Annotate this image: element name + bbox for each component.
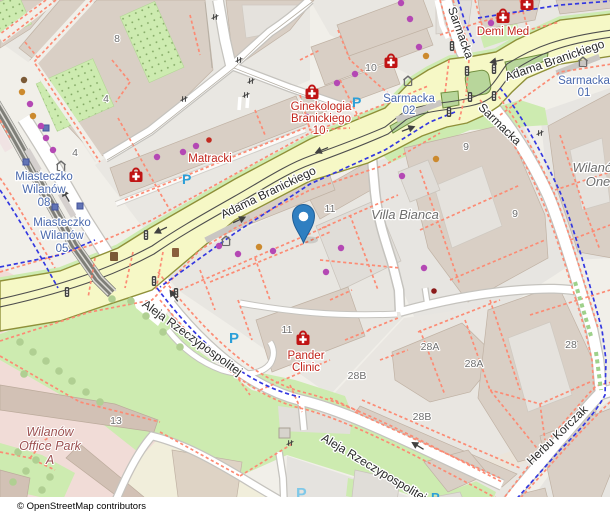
svg-text:Villa Bianca: Villa Bianca: [371, 207, 439, 222]
svg-text:02: 02: [403, 105, 416, 117]
svg-text:08: 08: [38, 197, 51, 209]
svg-text:01: 01: [578, 87, 591, 99]
svg-text:Branickiego: Branickiego: [291, 113, 351, 125]
svg-text:P: P: [182, 171, 191, 187]
svg-text:10: 10: [365, 62, 377, 74]
svg-text:28B: 28B: [348, 370, 367, 382]
svg-text:P: P: [229, 330, 239, 347]
svg-text:28B: 28B: [413, 411, 432, 423]
svg-text:Pander: Pander: [287, 350, 324, 362]
svg-text:© OpenStreetMap contributors: © OpenStreetMap contributors: [17, 501, 146, 512]
svg-text:05: 05: [56, 243, 69, 255]
svg-text:Demi Med: Demi Med: [477, 26, 529, 38]
svg-text:28: 28: [565, 339, 577, 351]
svg-text:Office Park: Office Park: [19, 439, 82, 453]
svg-text:Clinic: Clinic: [292, 362, 320, 374]
svg-text:8: 8: [114, 33, 120, 45]
svg-text:4: 4: [103, 93, 109, 105]
svg-text:Miasteczko: Miasteczko: [33, 217, 91, 229]
svg-text:Sarmacka: Sarmacka: [383, 93, 435, 105]
svg-text:Wilanów: Wilanów: [22, 184, 66, 196]
svg-text:28A: 28A: [421, 341, 440, 353]
svg-text:Wilanów: Wilanów: [40, 230, 84, 242]
svg-text:A: A: [45, 453, 54, 467]
svg-text:4: 4: [72, 147, 78, 159]
svg-text:10·: 10·: [313, 125, 330, 137]
svg-text:9: 9: [512, 208, 518, 220]
svg-text:Matracki: Matracki: [188, 153, 231, 165]
svg-text:11: 11: [325, 203, 336, 215]
svg-text:Ginekologia: Ginekologia: [291, 101, 352, 113]
svg-text:13: 13: [110, 415, 122, 427]
svg-text:One: One: [586, 174, 610, 189]
svg-text:Sarmacka: Sarmacka: [558, 75, 610, 87]
svg-text:Wilanów: Wilanów: [572, 160, 610, 175]
svg-text:28A: 28A: [465, 358, 484, 370]
svg-text:Miasteczko: Miasteczko: [15, 171, 73, 183]
svg-text:P: P: [352, 94, 361, 110]
svg-text:11: 11: [282, 324, 293, 336]
svg-text:9: 9: [463, 141, 469, 153]
svg-text:Wilanów: Wilanów: [26, 425, 74, 439]
